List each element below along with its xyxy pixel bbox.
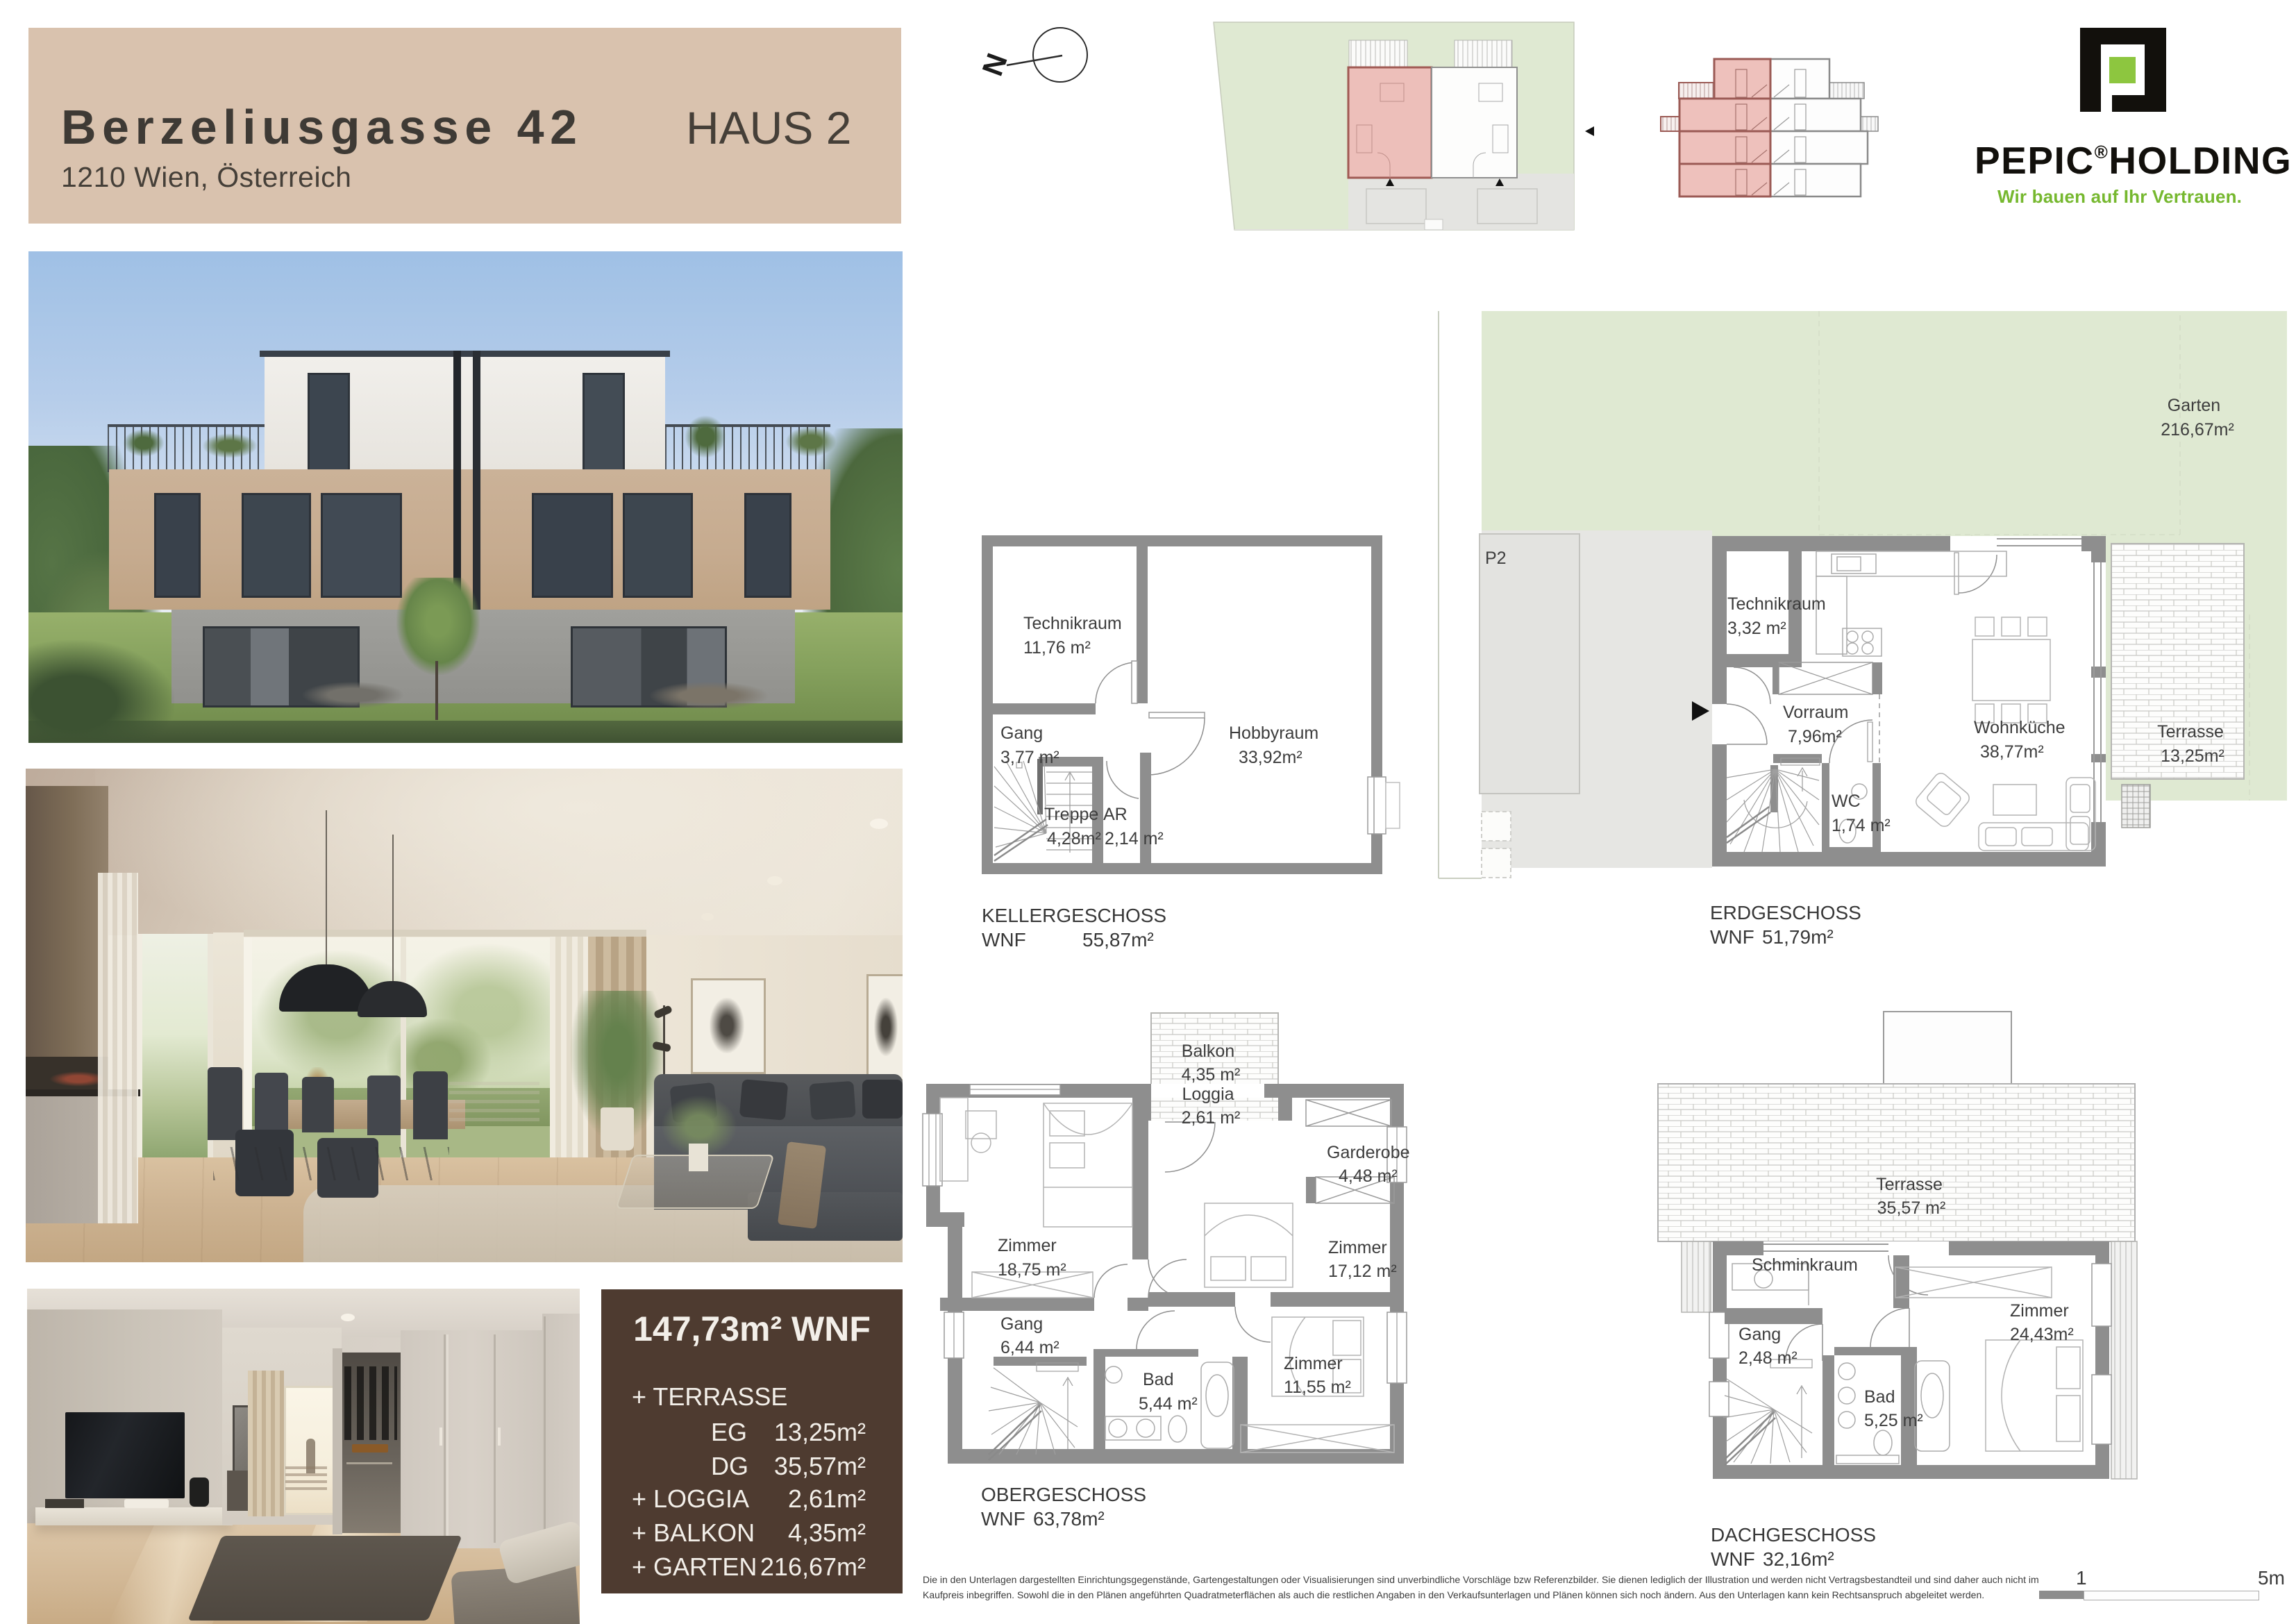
- svg-text:6,44 m²: 6,44 m²: [1000, 1338, 1059, 1357]
- svg-text:4,28m²: 4,28m²: [1047, 829, 1101, 848]
- svg-text:18,75 m²: 18,75 m²: [998, 1260, 1066, 1280]
- svg-text:2,14 m²: 2,14 m²: [1105, 829, 1164, 848]
- svg-text:3,32 m²: 3,32 m²: [1727, 619, 1786, 638]
- svg-text:Technikraum: Technikraum: [1727, 594, 1826, 614]
- svg-text:33,92m²: 33,92m²: [1239, 748, 1302, 767]
- svg-text:WNF: WNF: [1710, 926, 1754, 948]
- svg-text:OBERGESCHOSS: OBERGESCHOSS: [981, 1484, 1146, 1505]
- svg-text:Terrasse: Terrasse: [2157, 722, 2224, 742]
- svg-text:Gang: Gang: [1000, 723, 1043, 743]
- svg-text:Balkon: Balkon: [1182, 1041, 1234, 1061]
- svg-text:WNF: WNF: [981, 1508, 1025, 1530]
- svg-text:2,48 m²: 2,48 m²: [1738, 1348, 1798, 1368]
- svg-text:Vorraum: Vorraum: [1783, 703, 1848, 722]
- svg-text:Zimmer: Zimmer: [2010, 1301, 2069, 1321]
- svg-text:Loggia: Loggia: [1182, 1085, 1234, 1104]
- svg-text:Wohnküche: Wohnküche: [1974, 718, 2065, 737]
- svg-text:32,16m²: 32,16m²: [1763, 1548, 1834, 1569]
- svg-text:24,43m²: 24,43m²: [2010, 1325, 2074, 1344]
- svg-text:63,78m²: 63,78m²: [1033, 1508, 1105, 1530]
- svg-text:3,77 m²: 3,77 m²: [1000, 748, 1059, 767]
- svg-text:35,57 m²: 35,57 m²: [1877, 1198, 1946, 1218]
- svg-text:Gang: Gang: [1000, 1314, 1043, 1334]
- svg-text:51,79m²: 51,79m²: [1762, 926, 1834, 948]
- svg-text:P2: P2: [1485, 549, 1507, 568]
- svg-text:11,55 m²: 11,55 m²: [1284, 1378, 1351, 1397]
- svg-text:WNF: WNF: [982, 929, 1026, 951]
- svg-text:1,74 m²: 1,74 m²: [1832, 816, 1891, 835]
- svg-text:13,25m²: 13,25m²: [2161, 746, 2224, 766]
- svg-text:216,67m²: 216,67m²: [2161, 420, 2234, 440]
- svg-text:Schminkraum: Schminkraum: [1752, 1255, 1858, 1275]
- svg-text:Technikraum: Technikraum: [1023, 614, 1122, 633]
- svg-text:11,76 m²: 11,76 m²: [1023, 638, 1091, 658]
- svg-text:DACHGESCHOSS: DACHGESCHOSS: [1711, 1524, 1876, 1546]
- svg-text:38,77m²: 38,77m²: [1980, 742, 2044, 762]
- svg-text:AR: AR: [1103, 805, 1128, 824]
- svg-text:Treppe: Treppe: [1044, 805, 1098, 824]
- svg-text:Hobbyraum: Hobbyraum: [1229, 723, 1318, 743]
- svg-text:Bad: Bad: [1864, 1387, 1895, 1407]
- svg-text:KELLERGESCHOSS: KELLERGESCHOSS: [982, 905, 1166, 926]
- svg-text:7,96m²: 7,96m²: [1788, 727, 1842, 746]
- svg-text:ERDGESCHOSS: ERDGESCHOSS: [1710, 902, 1861, 923]
- svg-text:WC: WC: [1832, 792, 1861, 811]
- svg-text:Gang: Gang: [1738, 1325, 1781, 1344]
- svg-text:17,12 m²: 17,12 m²: [1328, 1262, 1397, 1281]
- svg-text:4,35 m²: 4,35 m²: [1182, 1065, 1241, 1085]
- svg-text:2,61 m²: 2,61 m²: [1182, 1108, 1241, 1128]
- svg-text:55,87m²: 55,87m²: [1082, 929, 1154, 951]
- svg-text:Garderobe: Garderobe: [1327, 1143, 1410, 1162]
- svg-text:WNF: WNF: [1711, 1548, 1755, 1569]
- svg-text:Terrasse: Terrasse: [1876, 1175, 1943, 1194]
- svg-text:Zimmer: Zimmer: [1328, 1238, 1387, 1257]
- svg-text:Zimmer: Zimmer: [998, 1236, 1057, 1255]
- svg-text:Garten: Garten: [2168, 396, 2220, 415]
- svg-text:5,44 m²: 5,44 m²: [1139, 1394, 1198, 1414]
- svg-text:4,48 m²: 4,48 m²: [1339, 1166, 1398, 1186]
- svg-text:Bad: Bad: [1143, 1370, 1173, 1389]
- svg-text:5,25 m²: 5,25 m²: [1864, 1411, 1923, 1430]
- svg-text:N: N: [975, 49, 1014, 81]
- svg-text:Zimmer: Zimmer: [1284, 1354, 1343, 1373]
